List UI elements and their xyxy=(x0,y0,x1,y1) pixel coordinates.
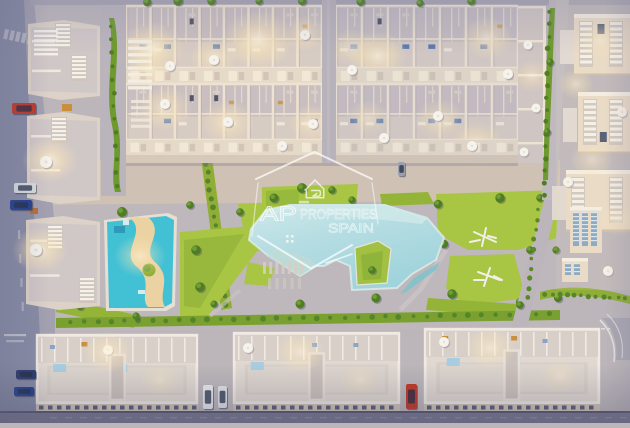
svg-text:PROPERTIES: PROPERTIES xyxy=(300,206,377,223)
svg-text:SPAIN: SPAIN xyxy=(328,222,374,236)
svg-text:AP: AP xyxy=(260,204,297,226)
